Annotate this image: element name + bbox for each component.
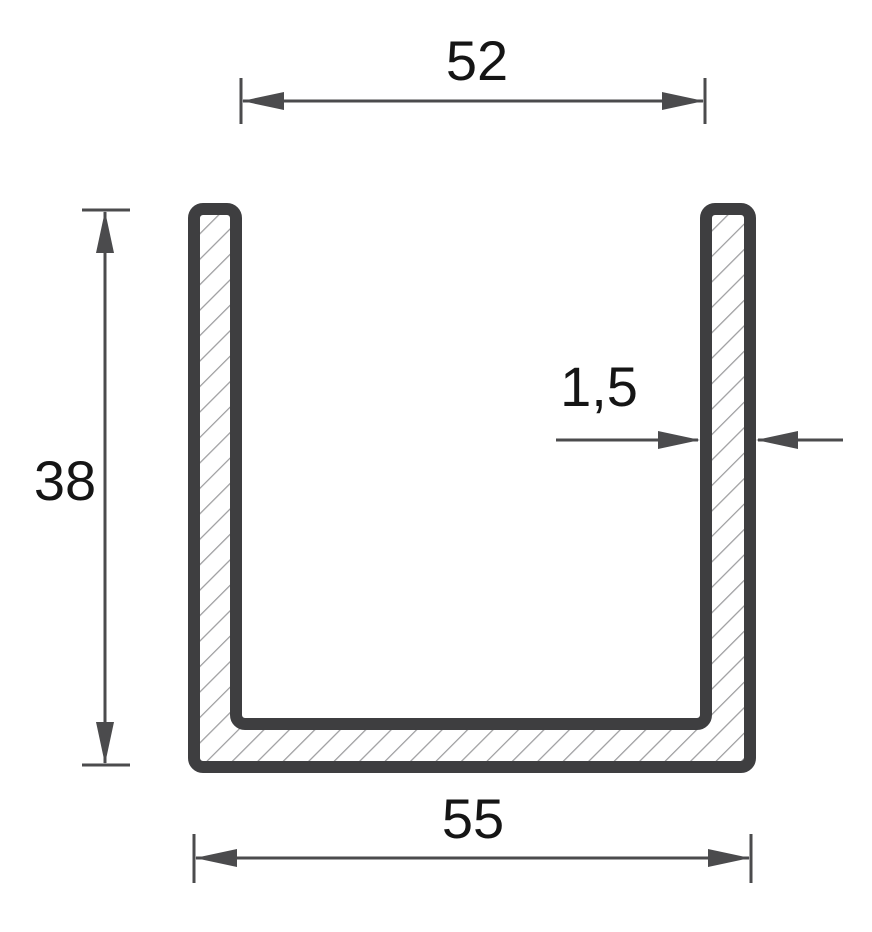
u-profile-outline [194, 209, 750, 767]
dimension-label-outer-width: 55 [442, 787, 504, 850]
arrowhead-down-icon [96, 722, 114, 764]
profile-section [194, 209, 750, 767]
arrowhead-left-icon [242, 92, 284, 110]
dimension-wall-thickness: 1,5 [556, 355, 843, 449]
arrowhead-right-icon [662, 92, 704, 110]
dimension-label-height: 38 [34, 449, 96, 512]
drawing-canvas: 52 38 1,5 55 [0, 0, 872, 932]
technical-drawing: 52 38 1,5 55 [0, 0, 872, 932]
arrowhead-right-icon [658, 431, 700, 449]
arrowhead-left-icon [756, 431, 798, 449]
dimension-height: 38 [34, 210, 130, 765]
arrowhead-left-icon [195, 849, 237, 867]
dimension-label-wall-thickness: 1,5 [560, 355, 638, 418]
dimension-label-inner-width: 52 [446, 29, 508, 92]
dimension-outer-width: 55 [194, 787, 751, 883]
arrowhead-right-icon [708, 849, 750, 867]
arrowhead-up-icon [96, 211, 114, 253]
dimension-inner-width: 52 [241, 29, 705, 124]
